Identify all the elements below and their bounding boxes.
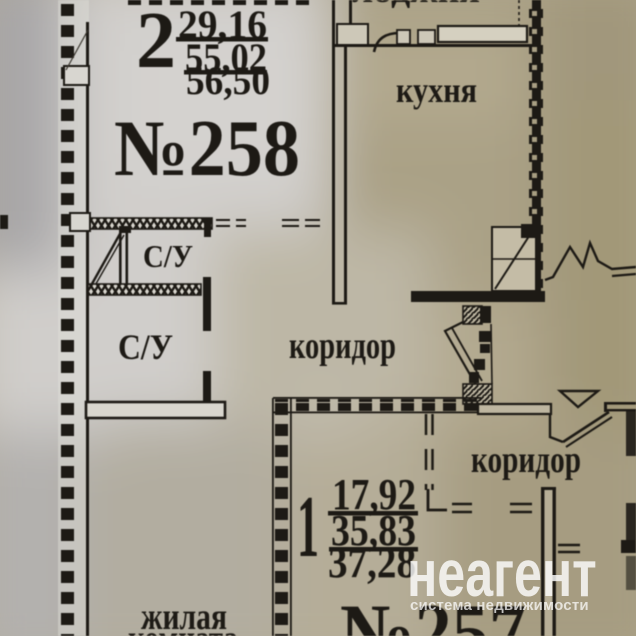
- svg-text:56,50: 56,50: [186, 58, 270, 103]
- svg-text:коридор: коридор: [289, 325, 396, 367]
- svg-text:кухня: кухня: [396, 70, 477, 110]
- svg-text:С/У: С/У: [143, 238, 193, 274]
- svg-text:37,28: 37,28: [328, 538, 416, 587]
- svg-text:С/У: С/У: [118, 327, 173, 367]
- svg-text:коридор: коридор: [471, 439, 581, 481]
- svg-text:1: 1: [297, 479, 319, 576]
- svg-text:№258: №258: [114, 105, 300, 193]
- svg-text:лоджия: лоджия: [352, 0, 480, 10]
- svg-text:2: 2: [136, 0, 176, 85]
- svg-text:комната: комната: [128, 618, 238, 636]
